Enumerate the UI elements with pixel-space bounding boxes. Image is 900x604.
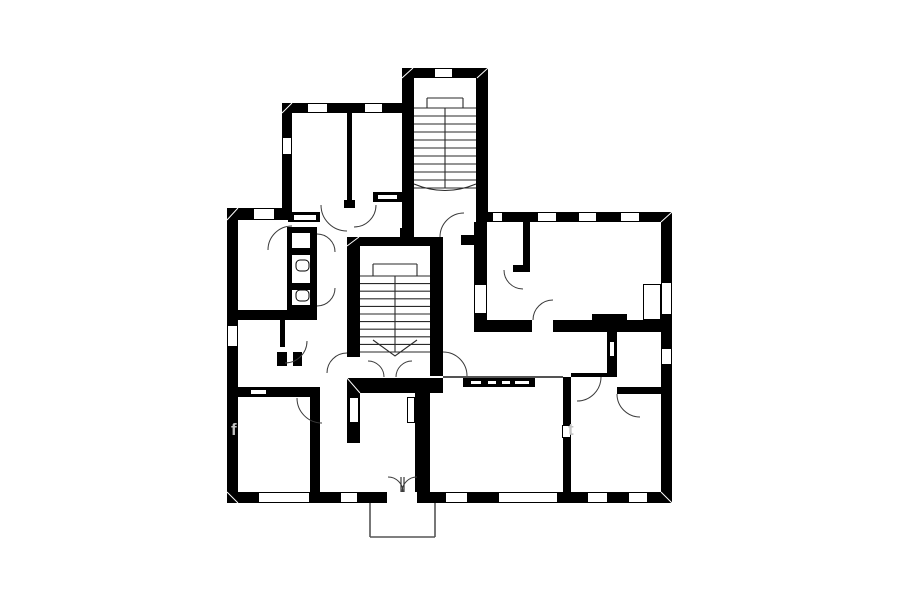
watermark-layer: ft <box>231 420 574 439</box>
watermark-letter: f <box>231 420 237 439</box>
wc-fixtures <box>296 260 309 301</box>
walls-layer <box>227 68 672 503</box>
entry-porch <box>370 503 435 537</box>
floor-plan-drawing: ft <box>0 0 900 604</box>
toilet-fixture <box>296 260 309 271</box>
floor-plan-page: ft <box>0 0 900 604</box>
toilet-fixture <box>296 290 309 301</box>
door-swings <box>268 205 640 492</box>
central-stairwell <box>360 264 430 356</box>
upper-stairwell <box>414 98 476 191</box>
entry-opening <box>387 492 417 503</box>
watermark-letter: t <box>568 420 574 439</box>
